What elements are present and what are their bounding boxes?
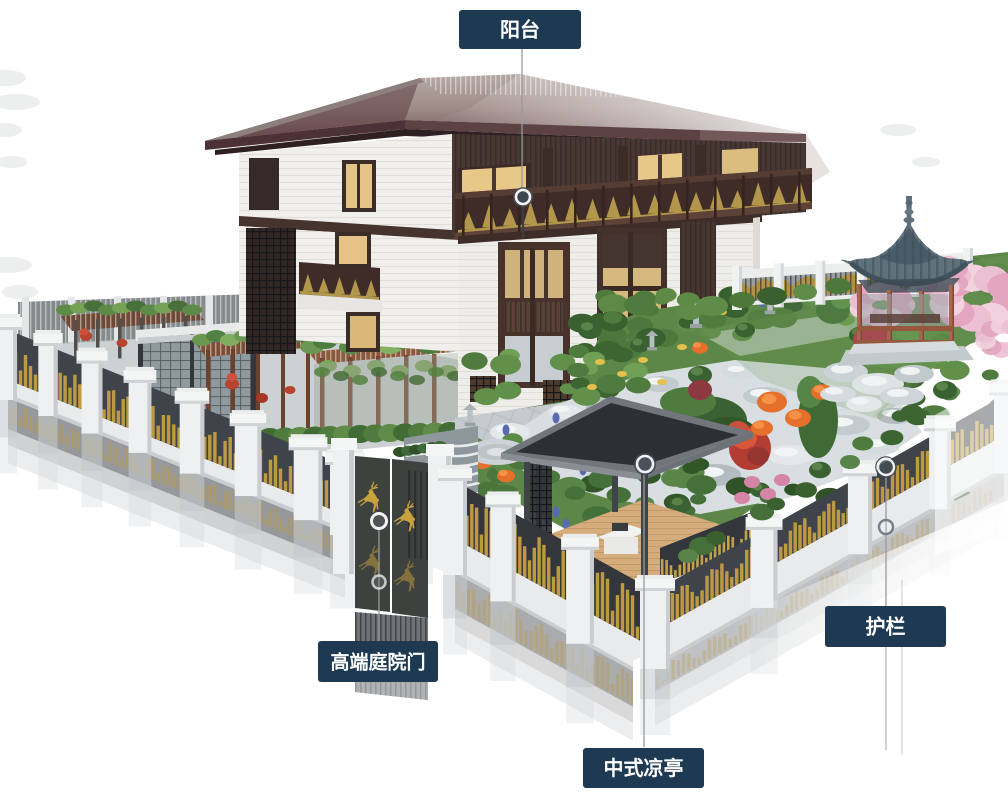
svg-text:中式凉亭: 中式凉亭 — [604, 756, 684, 780]
svg-text:高端庭院门: 高端庭院门 — [330, 650, 425, 673]
svg-text:阳台: 阳台 — [500, 18, 540, 42]
svg-text:护栏: 护栏 — [866, 615, 906, 639]
